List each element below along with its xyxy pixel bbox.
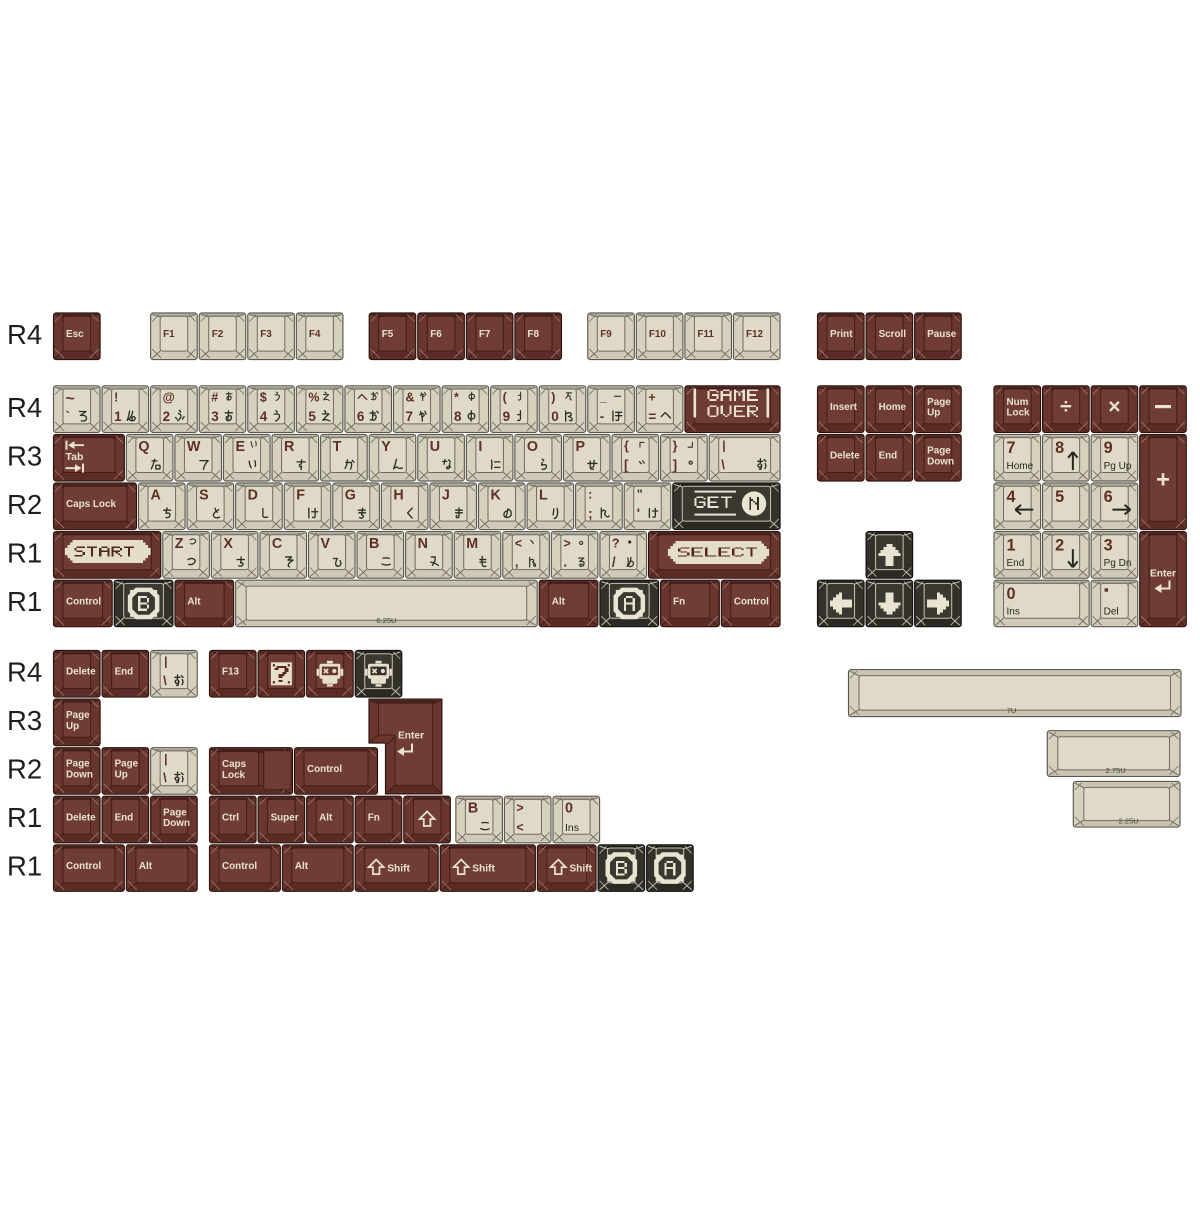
svg-text:Page: Page xyxy=(115,759,139,770)
svg-text:Num: Num xyxy=(1007,397,1029,408)
svg-text:Caps: Caps xyxy=(222,759,247,770)
svg-text:Super: Super xyxy=(271,812,299,823)
svg-text:Down: Down xyxy=(66,769,93,780)
svg-text:Lock: Lock xyxy=(222,770,246,781)
svg-text:@: @ xyxy=(163,391,175,405)
svg-text:D: D xyxy=(248,487,258,503)
svg-text:R4: R4 xyxy=(7,392,42,423)
svg-text:R2: R2 xyxy=(7,489,42,520)
svg-text:Home: Home xyxy=(879,402,907,413)
svg-text:Up: Up xyxy=(66,721,79,732)
svg-text:K: K xyxy=(490,487,501,503)
svg-text:A: A xyxy=(151,487,161,503)
svg-text::: : xyxy=(588,488,592,502)
svg-text:F7: F7 xyxy=(479,329,491,340)
svg-text:|: | xyxy=(722,439,725,453)
svg-text:;: ; xyxy=(588,506,593,521)
svg-text:F11: F11 xyxy=(697,329,714,340)
svg-text:Shift: Shift xyxy=(569,864,592,875)
svg-text:/: / xyxy=(612,555,616,570)
svg-text:Delete: Delete xyxy=(66,667,96,678)
svg-text:R1: R1 xyxy=(7,851,42,882)
svg-text:4: 4 xyxy=(260,409,268,424)
svg-text:F1: F1 xyxy=(163,329,175,340)
svg-text:Control: Control xyxy=(307,764,342,775)
svg-text:Alt: Alt xyxy=(295,861,309,872)
svg-text:F6: F6 xyxy=(430,329,442,340)
svg-text:`: ` xyxy=(66,409,71,424)
svg-text:,: , xyxy=(515,555,519,570)
svg-text:F12: F12 xyxy=(746,329,764,340)
svg-text:F8: F8 xyxy=(527,329,539,340)
svg-text:Page: Page xyxy=(66,710,90,721)
svg-text:1: 1 xyxy=(114,409,122,424)
svg-text:7: 7 xyxy=(1007,439,1016,457)
svg-text:F13: F13 xyxy=(222,667,240,678)
svg-text:>: > xyxy=(563,536,570,550)
svg-text:5: 5 xyxy=(1055,488,1064,506)
svg-text:Caps Lock: Caps Lock xyxy=(66,499,116,510)
svg-text:Shift: Shift xyxy=(387,864,410,875)
svg-text:Pg Up: Pg Up xyxy=(1104,461,1132,472)
svg-text:F10: F10 xyxy=(649,329,667,340)
svg-text:4: 4 xyxy=(1007,488,1016,506)
svg-text:=: = xyxy=(648,409,656,424)
svg-text:R3: R3 xyxy=(7,440,42,471)
svg-text:\: \ xyxy=(163,770,167,785)
svg-text:2.25U: 2.25U xyxy=(1119,817,1139,826)
svg-text:F2: F2 xyxy=(212,329,224,340)
svg-text:<: < xyxy=(516,820,523,834)
svg-text:J: J xyxy=(442,487,450,503)
svg-text:Delete: Delete xyxy=(66,812,96,823)
svg-text:M: M xyxy=(466,536,478,552)
svg-text:Delete: Delete xyxy=(830,451,860,462)
svg-text:.: . xyxy=(563,555,567,570)
svg-text:|: | xyxy=(164,752,167,766)
svg-text:|: | xyxy=(164,655,167,669)
svg-text:9: 9 xyxy=(503,409,511,424)
svg-text:Fn: Fn xyxy=(368,812,380,823)
svg-text:End: End xyxy=(115,667,134,678)
svg-text:+: + xyxy=(648,391,655,405)
svg-text:T: T xyxy=(333,439,342,455)
svg-text:Control: Control xyxy=(222,861,257,872)
svg-text:×: × xyxy=(1108,396,1120,419)
svg-text:0: 0 xyxy=(565,801,573,817)
svg-text:+: + xyxy=(1156,466,1170,493)
svg-text:Page: Page xyxy=(927,445,951,456)
svg-text:7U: 7U xyxy=(1007,706,1017,715)
svg-text:Control: Control xyxy=(734,596,769,607)
svg-text:}: } xyxy=(673,439,678,453)
svg-text:R1: R1 xyxy=(7,537,42,568)
svg-text:R3: R3 xyxy=(7,705,42,736)
svg-text:<: < xyxy=(515,536,522,550)
svg-text:F5: F5 xyxy=(382,329,394,340)
svg-text:$: $ xyxy=(260,391,267,405)
svg-text:_: _ xyxy=(599,391,608,405)
svg-text:3: 3 xyxy=(1104,536,1113,554)
svg-text:Scroll: Scroll xyxy=(879,329,907,340)
svg-text:Q: Q xyxy=(138,439,149,455)
svg-text:Ctrl: Ctrl xyxy=(222,812,239,823)
svg-text:F3: F3 xyxy=(260,329,272,340)
svg-text:6.25U: 6.25U xyxy=(376,616,396,625)
svg-text:!: ! xyxy=(114,391,118,405)
svg-text:R4: R4 xyxy=(7,319,42,350)
svg-text:Pg Dn: Pg Dn xyxy=(1104,558,1132,569)
svg-text:Y: Y xyxy=(381,439,391,455)
svg-text:L: L xyxy=(539,487,548,503)
svg-text:1: 1 xyxy=(1007,536,1016,554)
svg-text:P: P xyxy=(575,439,585,455)
svg-text:Pause: Pause xyxy=(927,329,957,340)
svg-text:&: & xyxy=(405,391,414,405)
svg-text:W: W xyxy=(187,439,201,455)
svg-text:Alt: Alt xyxy=(139,861,153,872)
svg-text:-: - xyxy=(600,409,605,424)
svg-text:R: R xyxy=(284,439,295,455)
svg-text:Enter: Enter xyxy=(398,731,424,742)
svg-text:8: 8 xyxy=(454,409,462,424)
svg-text:U: U xyxy=(430,439,440,455)
svg-text:7: 7 xyxy=(405,409,413,424)
svg-text:Alt: Alt xyxy=(552,596,566,607)
svg-text:R1: R1 xyxy=(7,802,42,833)
svg-text:H: H xyxy=(393,487,403,503)
svg-text:Page: Page xyxy=(163,807,187,818)
svg-text:[: [ xyxy=(624,458,629,473)
svg-text:Fn: Fn xyxy=(673,596,685,607)
svg-text:Lock: Lock xyxy=(1007,408,1031,419)
svg-text:Page: Page xyxy=(66,759,90,770)
svg-text:÷: ÷ xyxy=(1060,396,1072,419)
svg-text:End: End xyxy=(1007,558,1025,569)
svg-text:?: ? xyxy=(612,536,620,550)
svg-text:Del: Del xyxy=(1104,607,1119,618)
svg-text:~: ~ xyxy=(66,391,75,408)
svg-text:): ) xyxy=(551,391,555,405)
svg-text:Esc: Esc xyxy=(66,329,84,340)
svg-text:6: 6 xyxy=(1104,488,1113,506)
svg-text:S: S xyxy=(199,487,209,503)
svg-text:G: G xyxy=(345,487,356,503)
svg-text:R4: R4 xyxy=(7,656,42,687)
svg-text:R1: R1 xyxy=(7,586,42,617)
svg-text:I: I xyxy=(478,439,482,455)
svg-text:B: B xyxy=(369,536,379,552)
svg-text:B: B xyxy=(468,801,478,817)
svg-text:X: X xyxy=(223,536,233,552)
svg-text:Control: Control xyxy=(66,596,101,607)
svg-text:6: 6 xyxy=(357,409,365,424)
svg-text:Ins: Ins xyxy=(1007,607,1020,618)
svg-text:': ' xyxy=(637,506,640,521)
svg-text:End: End xyxy=(879,451,898,462)
svg-text:]: ] xyxy=(673,458,678,473)
svg-text:F4: F4 xyxy=(309,329,321,340)
svg-text:Tab: Tab xyxy=(66,451,84,463)
svg-text:2: 2 xyxy=(163,409,171,424)
svg-text:9: 9 xyxy=(1104,439,1113,457)
svg-text:\: \ xyxy=(721,457,725,472)
svg-text:Up: Up xyxy=(927,408,940,419)
svg-text:N: N xyxy=(418,536,428,552)
svg-text:0: 0 xyxy=(551,409,559,424)
svg-text:3: 3 xyxy=(211,409,219,424)
svg-text:E: E xyxy=(236,439,246,455)
svg-text:F9: F9 xyxy=(600,329,612,340)
svg-text:End: End xyxy=(115,812,134,823)
svg-text:Down: Down xyxy=(163,818,190,829)
svg-text:": " xyxy=(637,488,643,502)
svg-text:Down: Down xyxy=(927,456,954,467)
svg-text:Home: Home xyxy=(1007,461,1034,472)
svg-text:8: 8 xyxy=(1055,439,1064,457)
svg-text:Ins: Ins xyxy=(565,822,579,834)
svg-text:{: { xyxy=(624,439,629,453)
svg-text:*: * xyxy=(454,391,459,405)
svg-text:5: 5 xyxy=(308,409,316,424)
svg-text:0: 0 xyxy=(1007,585,1016,603)
svg-text:2: 2 xyxy=(1055,536,1064,554)
svg-text:#: # xyxy=(211,391,218,405)
svg-text:>: > xyxy=(516,801,523,815)
svg-text:Control: Control xyxy=(66,861,101,872)
svg-text:\: \ xyxy=(163,673,167,688)
svg-text:V: V xyxy=(320,536,330,552)
svg-text:Up: Up xyxy=(115,769,128,780)
svg-text:O: O xyxy=(527,439,538,455)
svg-text:F: F xyxy=(296,487,305,503)
svg-text:Shift: Shift xyxy=(472,864,495,875)
svg-text:Print: Print xyxy=(830,329,853,340)
svg-text:Alt: Alt xyxy=(187,596,201,607)
svg-text:Z: Z xyxy=(175,536,184,552)
svg-text:Alt: Alt xyxy=(319,812,333,823)
svg-text:Page: Page xyxy=(927,397,951,408)
svg-text:%: % xyxy=(308,391,319,405)
svg-text:Insert: Insert xyxy=(830,402,858,413)
svg-text:C: C xyxy=(272,536,282,552)
svg-text:2.75U: 2.75U xyxy=(1106,766,1126,775)
svg-text:Enter: Enter xyxy=(1150,568,1176,579)
svg-text:R2: R2 xyxy=(7,754,42,785)
